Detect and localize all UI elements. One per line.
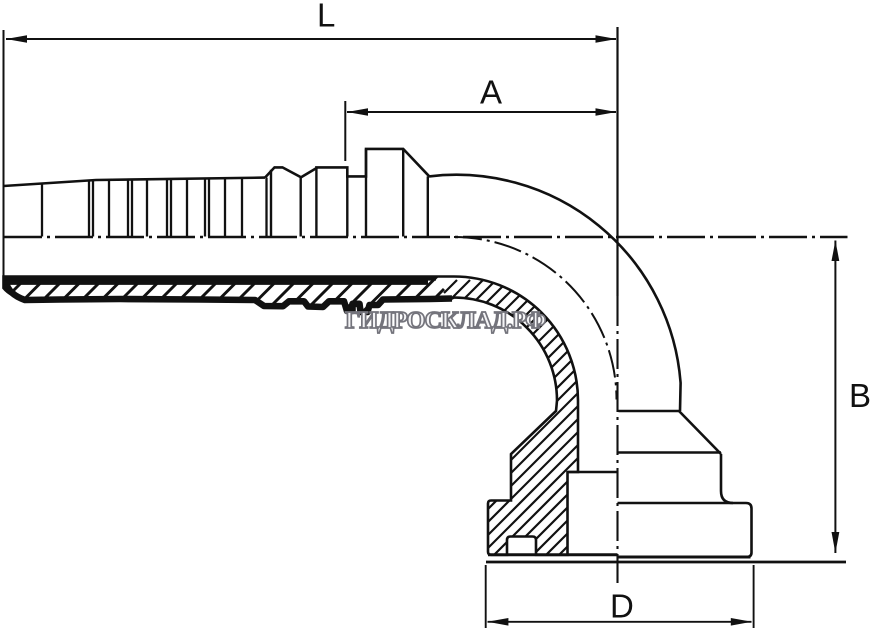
svg-text:B: B <box>849 377 871 414</box>
svg-text:L: L <box>317 0 335 34</box>
svg-text:D: D <box>610 588 634 625</box>
svg-text:ГИДРОСКЛАД.РФ: ГИДРОСКЛАД.РФ <box>345 307 546 334</box>
svg-text:A: A <box>480 74 502 111</box>
